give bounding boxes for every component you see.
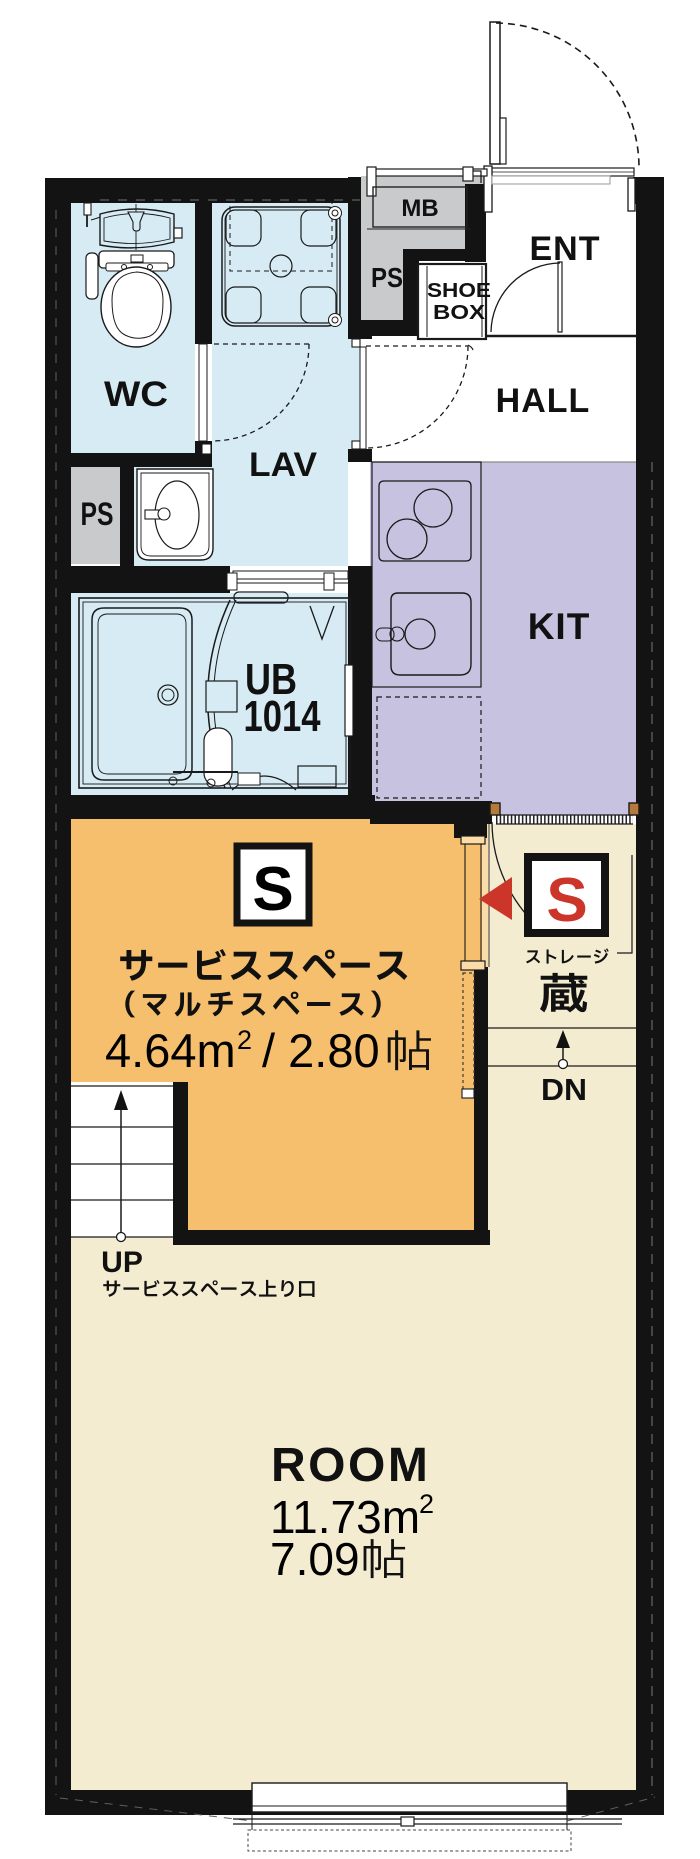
svg-text:S: S: [252, 855, 293, 924]
svg-text:MB: MB: [401, 195, 438, 222]
svg-text:UP: UP: [101, 1246, 143, 1279]
svg-text:ENT: ENT: [530, 230, 601, 268]
svg-text:HALL: HALL: [496, 382, 591, 420]
svg-text:WC: WC: [104, 375, 168, 414]
svg-text:LAV: LAV: [249, 446, 317, 484]
svg-text:SHOE: SHOE: [427, 279, 491, 302]
svg-text:KIT: KIT: [528, 606, 591, 647]
svg-text:1014: 1014: [244, 692, 321, 741]
svg-text:ROOM: ROOM: [271, 1439, 430, 1492]
svg-text:4.64m: 4.64m: [105, 1024, 236, 1077]
svg-text:PS: PS: [371, 262, 403, 293]
svg-text:DN: DN: [541, 1072, 587, 1107]
svg-text:PS: PS: [81, 496, 114, 532]
svg-text:7.09: 7.09: [270, 1533, 360, 1585]
svg-text:2: 2: [237, 1025, 252, 1055]
svg-text:BOX: BOX: [433, 301, 485, 324]
svg-text:S: S: [546, 866, 587, 935]
svg-text:/ 2.80: / 2.80: [262, 1024, 380, 1077]
svg-text:2: 2: [419, 1489, 434, 1519]
